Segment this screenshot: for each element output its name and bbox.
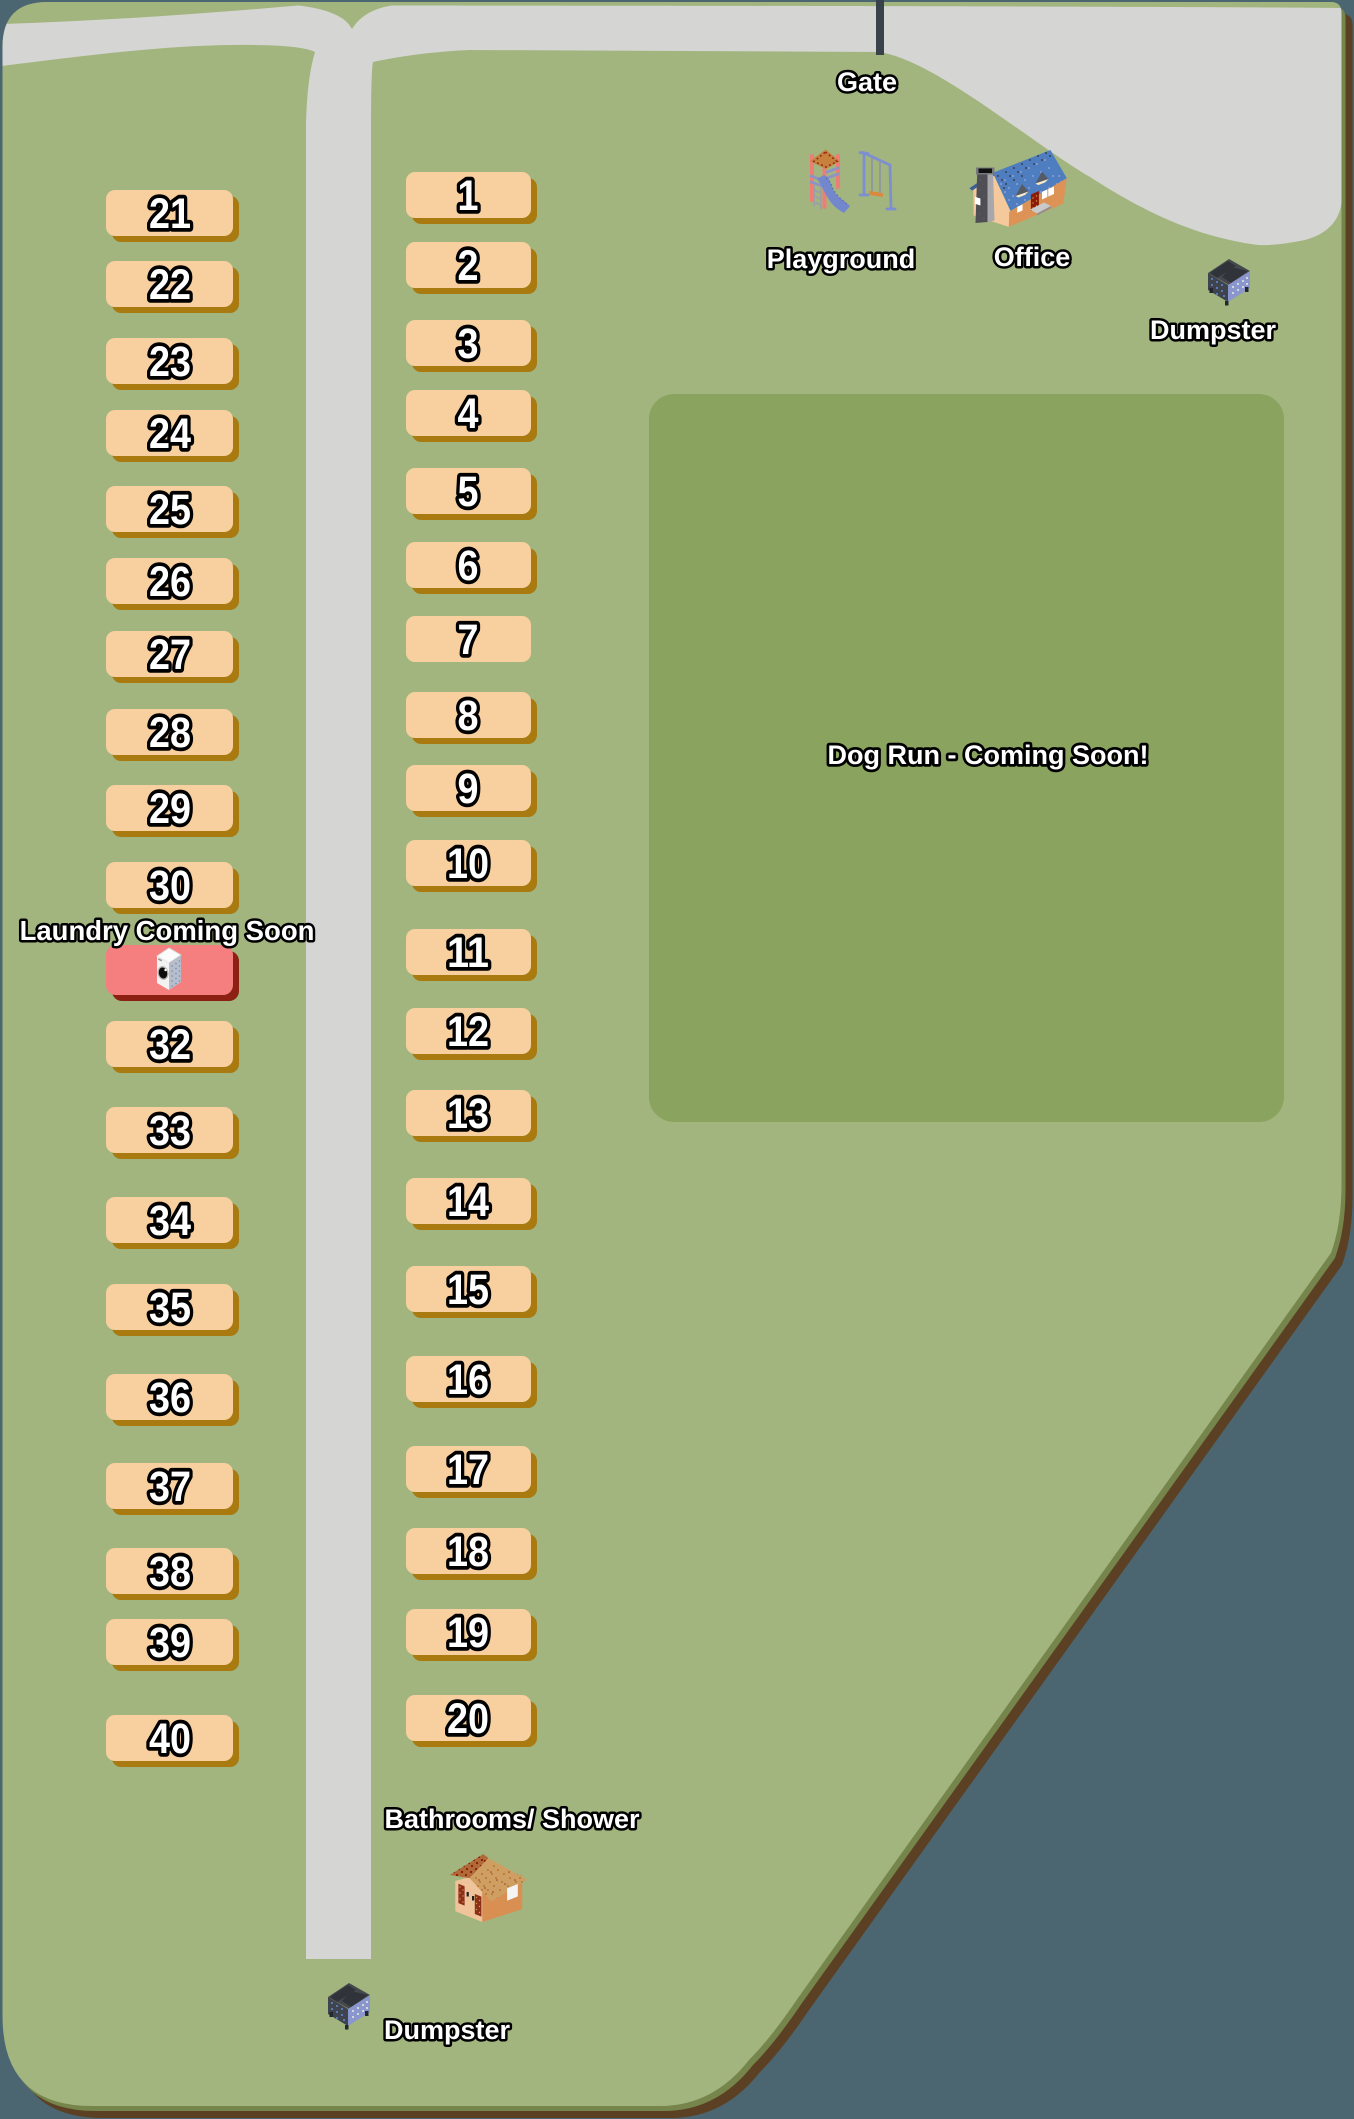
svg-text:11: 11: [447, 929, 489, 977]
svg-text:18: 18: [447, 1528, 489, 1576]
svg-text:14: 14: [447, 1178, 489, 1226]
svg-text:19: 19: [447, 1609, 489, 1657]
svg-text:33: 33: [149, 1107, 191, 1155]
svg-text:39: 39: [149, 1619, 191, 1667]
svg-text:3: 3: [458, 320, 479, 368]
svg-text:23: 23: [149, 338, 191, 386]
svg-text:1: 1: [458, 172, 479, 220]
svg-text:Dog Run - Coming Soon!: Dog Run - Coming Soon!: [828, 740, 1149, 770]
svg-text:29: 29: [149, 785, 191, 833]
svg-text:13: 13: [447, 1090, 489, 1138]
svg-text:Dumpster: Dumpster: [384, 2015, 511, 2045]
svg-text:Bathrooms/ Shower: Bathrooms/ Shower: [384, 1804, 640, 1834]
svg-text:20: 20: [447, 1695, 489, 1743]
svg-text:8: 8: [458, 692, 479, 740]
svg-text:2: 2: [458, 242, 479, 290]
svg-text:27: 27: [149, 631, 191, 679]
svg-text:37: 37: [149, 1463, 191, 1511]
svg-text:36: 36: [149, 1374, 191, 1422]
svg-text:12: 12: [447, 1008, 489, 1056]
svg-text:Dumpster: Dumpster: [1150, 315, 1277, 345]
svg-text:21: 21: [149, 190, 191, 238]
svg-text:30: 30: [149, 862, 191, 910]
svg-text:25: 25: [149, 486, 191, 534]
svg-text:24: 24: [149, 410, 191, 458]
svg-text:26: 26: [149, 558, 191, 606]
svg-text:15: 15: [447, 1266, 489, 1314]
svg-text:6: 6: [458, 542, 479, 590]
svg-text:5: 5: [458, 468, 479, 516]
svg-text:35: 35: [149, 1284, 191, 1332]
svg-text:7: 7: [458, 616, 479, 664]
svg-text:16: 16: [447, 1356, 489, 1404]
svg-text:Laundry Coming Soon: Laundry Coming Soon: [20, 915, 315, 946]
svg-text:40: 40: [149, 1715, 191, 1763]
svg-text:Gate: Gate: [837, 67, 897, 97]
svg-text:Office: Office: [994, 242, 1071, 272]
svg-text:4: 4: [458, 390, 479, 438]
svg-text:38: 38: [149, 1548, 191, 1596]
svg-text:28: 28: [149, 709, 191, 757]
svg-text:9: 9: [458, 765, 479, 813]
svg-text:32: 32: [149, 1021, 191, 1069]
svg-text:10: 10: [447, 840, 489, 888]
svg-text:17: 17: [447, 1446, 489, 1494]
svg-text:22: 22: [149, 261, 191, 309]
svg-text:34: 34: [149, 1197, 191, 1245]
svg-text:Playground: Playground: [767, 244, 916, 274]
